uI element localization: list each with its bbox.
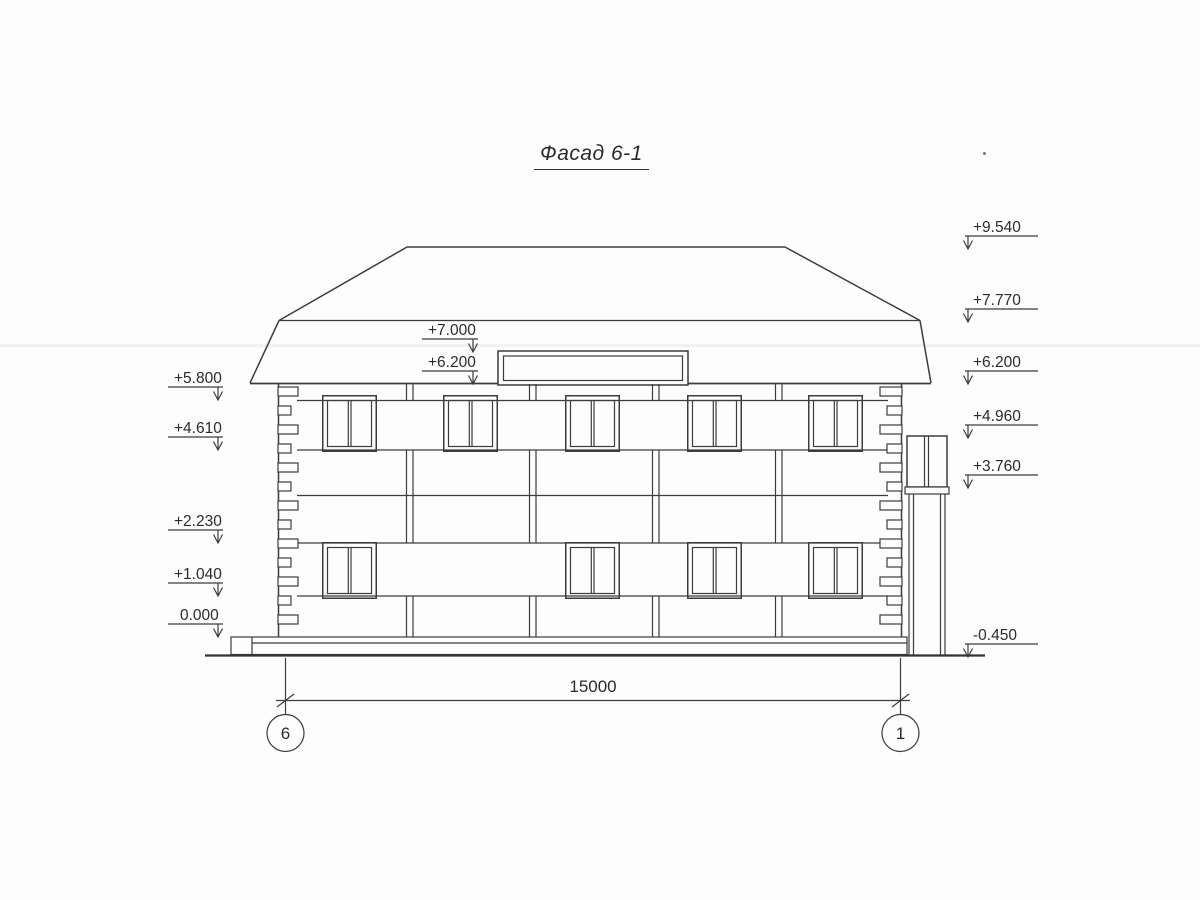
elevation-mark: +2.230 xyxy=(168,513,223,543)
axis-bubble-left: 6 xyxy=(267,715,304,752)
svg-text:+4.960: +4.960 xyxy=(973,408,1021,425)
svg-text:+5.800: +5.800 xyxy=(174,370,222,387)
svg-text:+4.610: +4.610 xyxy=(174,420,222,437)
elevation-marks-left: +5.800 +4.610 +2.230 +1.040 0.000 xyxy=(168,370,223,637)
elevation-mark: +7.000 xyxy=(422,322,478,352)
svg-text:+6.200: +6.200 xyxy=(428,354,476,371)
plinth xyxy=(231,637,907,655)
svg-text:+1.040: +1.040 xyxy=(174,566,222,583)
elevation-mark: +5.800 xyxy=(168,370,223,400)
facade-elevation-svg: 15000 6 1 +5.800 +4.610 +2.230 +1.040 0.… xyxy=(0,0,1200,900)
elevation-mark: 0.000 xyxy=(168,607,223,637)
svg-text:0.000: 0.000 xyxy=(180,607,219,624)
elevation-mark: -0.450 xyxy=(964,627,1039,657)
chimney-shaft xyxy=(905,436,949,655)
left-quoins xyxy=(278,387,298,624)
axis-label-left: 6 xyxy=(281,724,290,743)
elevation-mark: +1.040 xyxy=(168,566,223,596)
axis-label-right: 1 xyxy=(896,724,905,743)
upper-belt-band xyxy=(297,401,888,451)
lower-belt-band xyxy=(297,543,888,596)
elevation-mark: +3.760 xyxy=(964,458,1039,488)
svg-text:+7.770: +7.770 xyxy=(973,292,1021,309)
elevation-marks-right: +9.540 +7.770 +6.200 +4.960 +3.760 -0.45… xyxy=(964,219,1039,657)
svg-text:+3.760: +3.760 xyxy=(973,458,1021,475)
svg-text:-0.450: -0.450 xyxy=(973,627,1017,644)
attic-panel xyxy=(498,351,688,385)
svg-text:+6.200: +6.200 xyxy=(973,354,1021,371)
elevation-mark: +4.610 xyxy=(168,420,223,450)
svg-text:+9.540: +9.540 xyxy=(973,219,1021,236)
elevation-marks-middle: +7.000 +6.200 xyxy=(422,322,478,384)
axis-bubble-right: 1 xyxy=(882,715,919,752)
elevation-mark: +9.540 xyxy=(964,219,1039,249)
elevation-mark: +6.200 xyxy=(422,354,478,384)
elevation-mark: +4.960 xyxy=(964,408,1039,438)
elevation-mark: +7.770 xyxy=(964,292,1039,322)
dimension-value: 15000 xyxy=(569,677,616,696)
elevation-mark: +6.200 xyxy=(964,354,1039,384)
svg-text:+2.230: +2.230 xyxy=(174,513,222,530)
dimension-line: 15000 xyxy=(276,658,910,714)
facade-drawing-page: { "title": "Фасад 6-1", "dimension": { "… xyxy=(0,0,1200,900)
svg-text:+7.000: +7.000 xyxy=(428,322,476,339)
